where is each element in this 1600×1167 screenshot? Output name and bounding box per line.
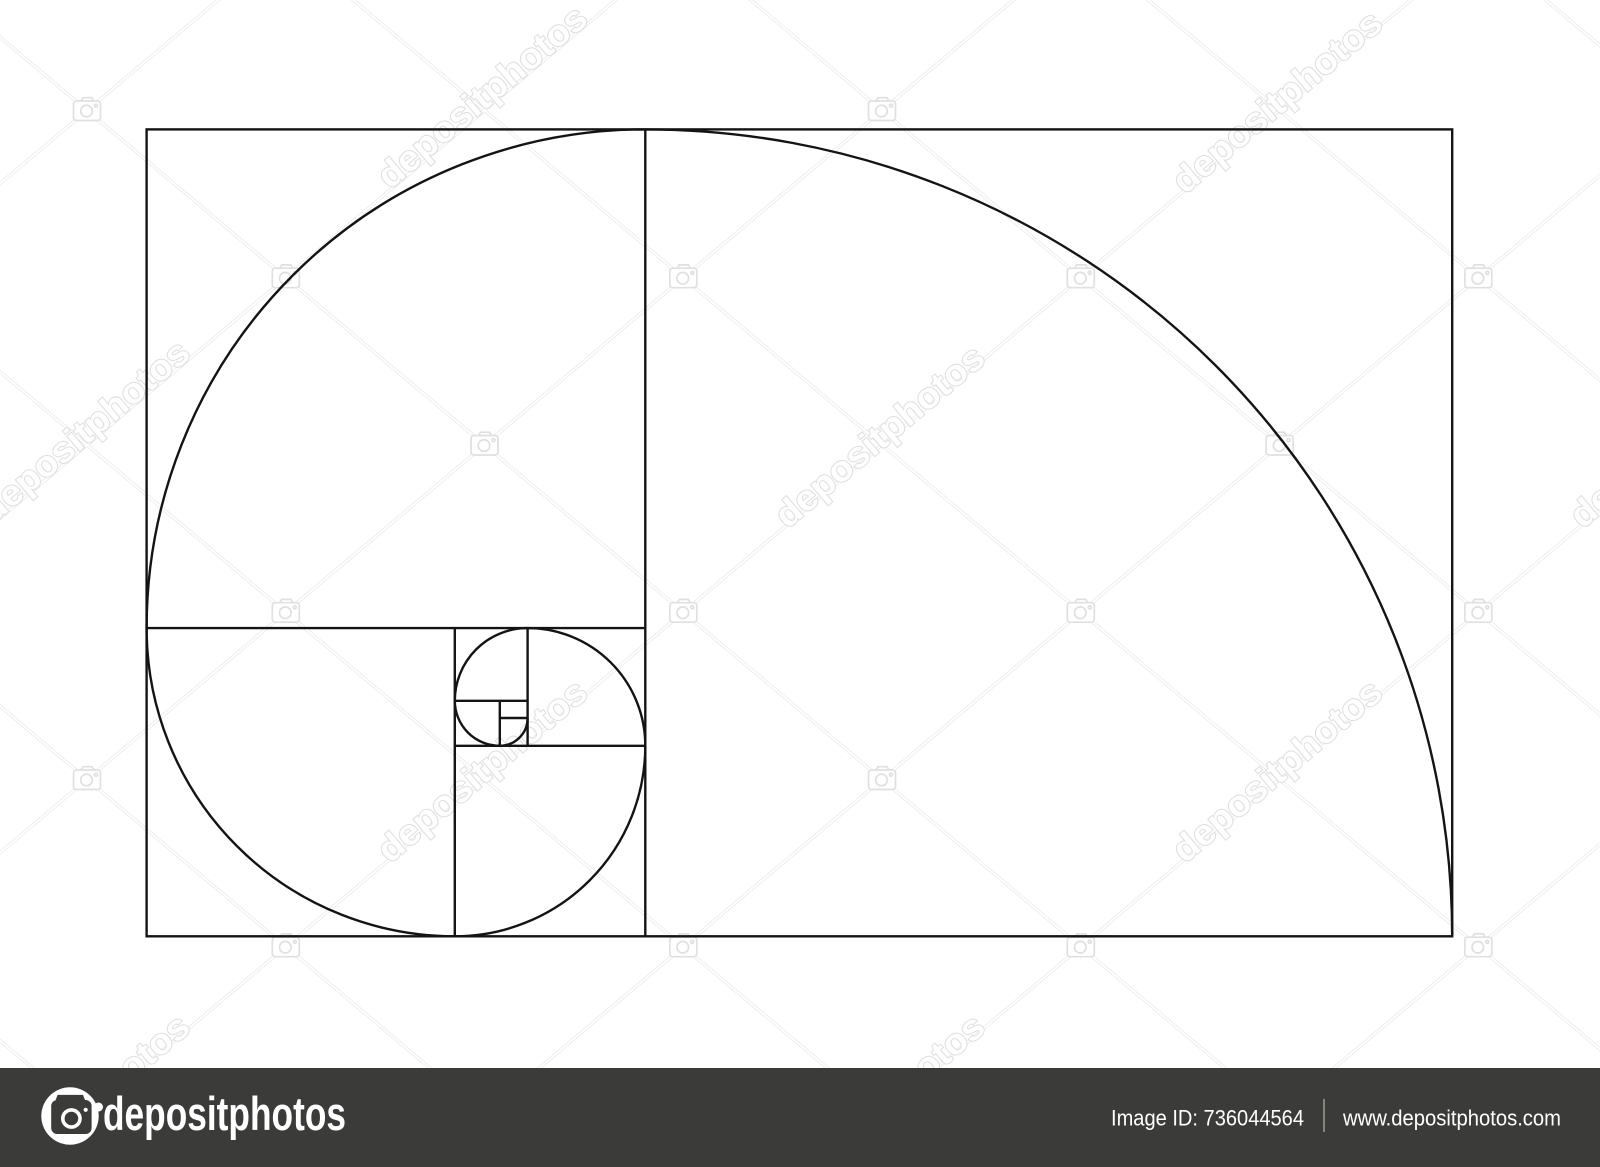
svg-text:depositphotos: depositphotos [103,1087,346,1140]
svg-text:depositphotos: depositphotos [1561,336,1600,535]
svg-text:depositphotos: depositphotos [1164,671,1390,870]
svg-text:depositphotos: depositphotos [0,331,197,530]
svg-text:depositphotos: depositphotos [1164,2,1390,201]
svg-text:depositphotos: depositphotos [766,336,992,535]
svg-text:depositphotos: depositphotos [369,0,595,196]
svg-text:Image ID: 736044564: Image ID: 736044564 [1111,1106,1304,1131]
svg-text:www.depositphotos.com: www.depositphotos.com [1342,1106,1561,1131]
